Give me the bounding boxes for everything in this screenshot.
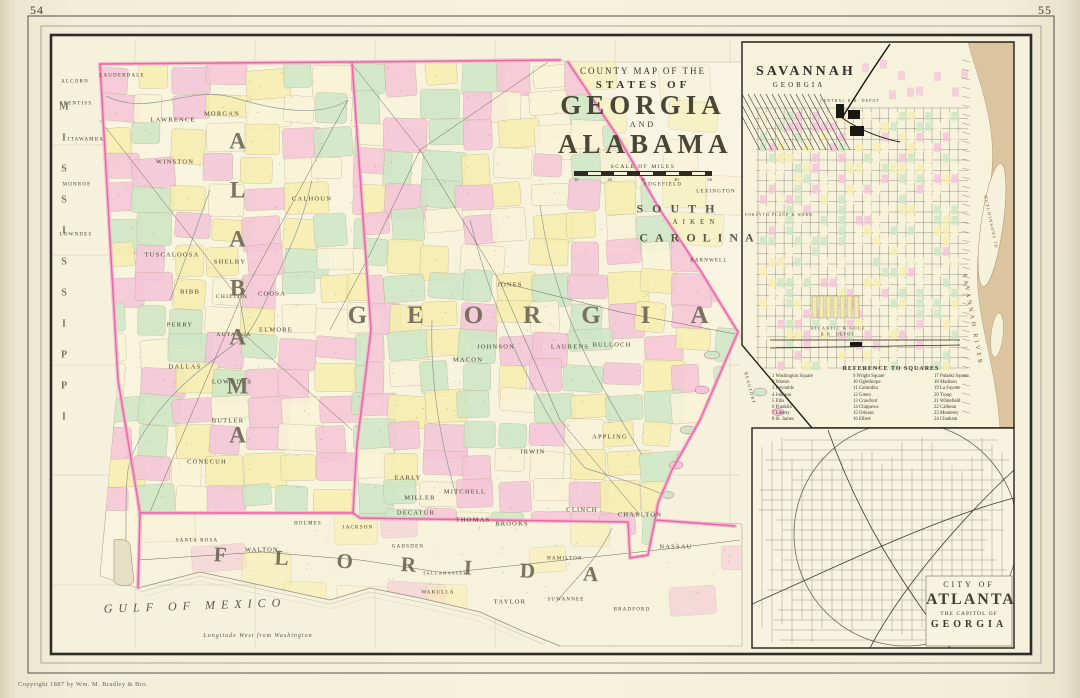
scale-ticks: 1020304050 bbox=[558, 177, 728, 182]
reference-item: 24 Chatham bbox=[934, 417, 1010, 423]
savannah-subtitle: GEORGIA bbox=[756, 81, 842, 89]
reference-item: 8 St. James bbox=[772, 417, 848, 423]
atlanta-title-kicker: CITY OF bbox=[926, 580, 1012, 589]
atlanta-title-sub: THE CAPITOL OF bbox=[926, 611, 1012, 617]
scale-bar bbox=[574, 171, 712, 176]
reference-column-3: 17 Pulaski Square18 Madison19 La Fayette… bbox=[934, 374, 1010, 424]
scale-tick: 20 bbox=[607, 177, 612, 182]
scale-tick: 40 bbox=[674, 177, 679, 182]
title-kicker: COUNTY MAP OF THE bbox=[558, 66, 728, 76]
savannah-title: SAVANNAH bbox=[756, 64, 842, 80]
atlanta-inset-title: CITY OF ATLANTA THE CAPITOL OF GEORGIA bbox=[926, 580, 1012, 630]
reference-item: 16 Elbert bbox=[853, 417, 929, 423]
map-title-block: COUNTY MAP OF THE STATES OF GEORGIA AND … bbox=[558, 66, 728, 182]
atlas-page: 54 55 bbox=[0, 0, 1080, 698]
title-georgia: GEORGIA bbox=[558, 91, 728, 119]
title-alabama: ALABAMA bbox=[558, 130, 728, 158]
reference-legend: REFERENCE TO SQUARES 1 Washington Square… bbox=[772, 366, 1010, 424]
title-and: AND bbox=[558, 120, 728, 129]
reference-column-1: 1 Washington Square2 Warren3 Reynolds4 J… bbox=[772, 374, 848, 424]
map-artwork bbox=[0, 0, 1080, 698]
scale-tick: 50 bbox=[708, 177, 713, 182]
reference-legend-columns: 1 Washington Square2 Warren3 Reynolds4 J… bbox=[772, 374, 1010, 424]
reference-column-2: 9 Wright Square10 Oglethorpe11 Columbia1… bbox=[853, 374, 929, 424]
atlanta-title: ATLANTA bbox=[926, 591, 1012, 609]
reference-legend-title: REFERENCE TO SQUARES bbox=[772, 366, 1010, 372]
atlanta-title-state: GEORGIA bbox=[926, 619, 1012, 630]
scale-label: SCALE OF MILES bbox=[558, 164, 728, 170]
scale-tick: 10 bbox=[574, 177, 579, 182]
scale-tick: 30 bbox=[641, 177, 646, 182]
copyright-line: Copyright 1887 by Wm. M. Bradley & Bro. bbox=[18, 681, 148, 688]
savannah-inset-title: SAVANNAH GEORGIA bbox=[756, 64, 842, 89]
